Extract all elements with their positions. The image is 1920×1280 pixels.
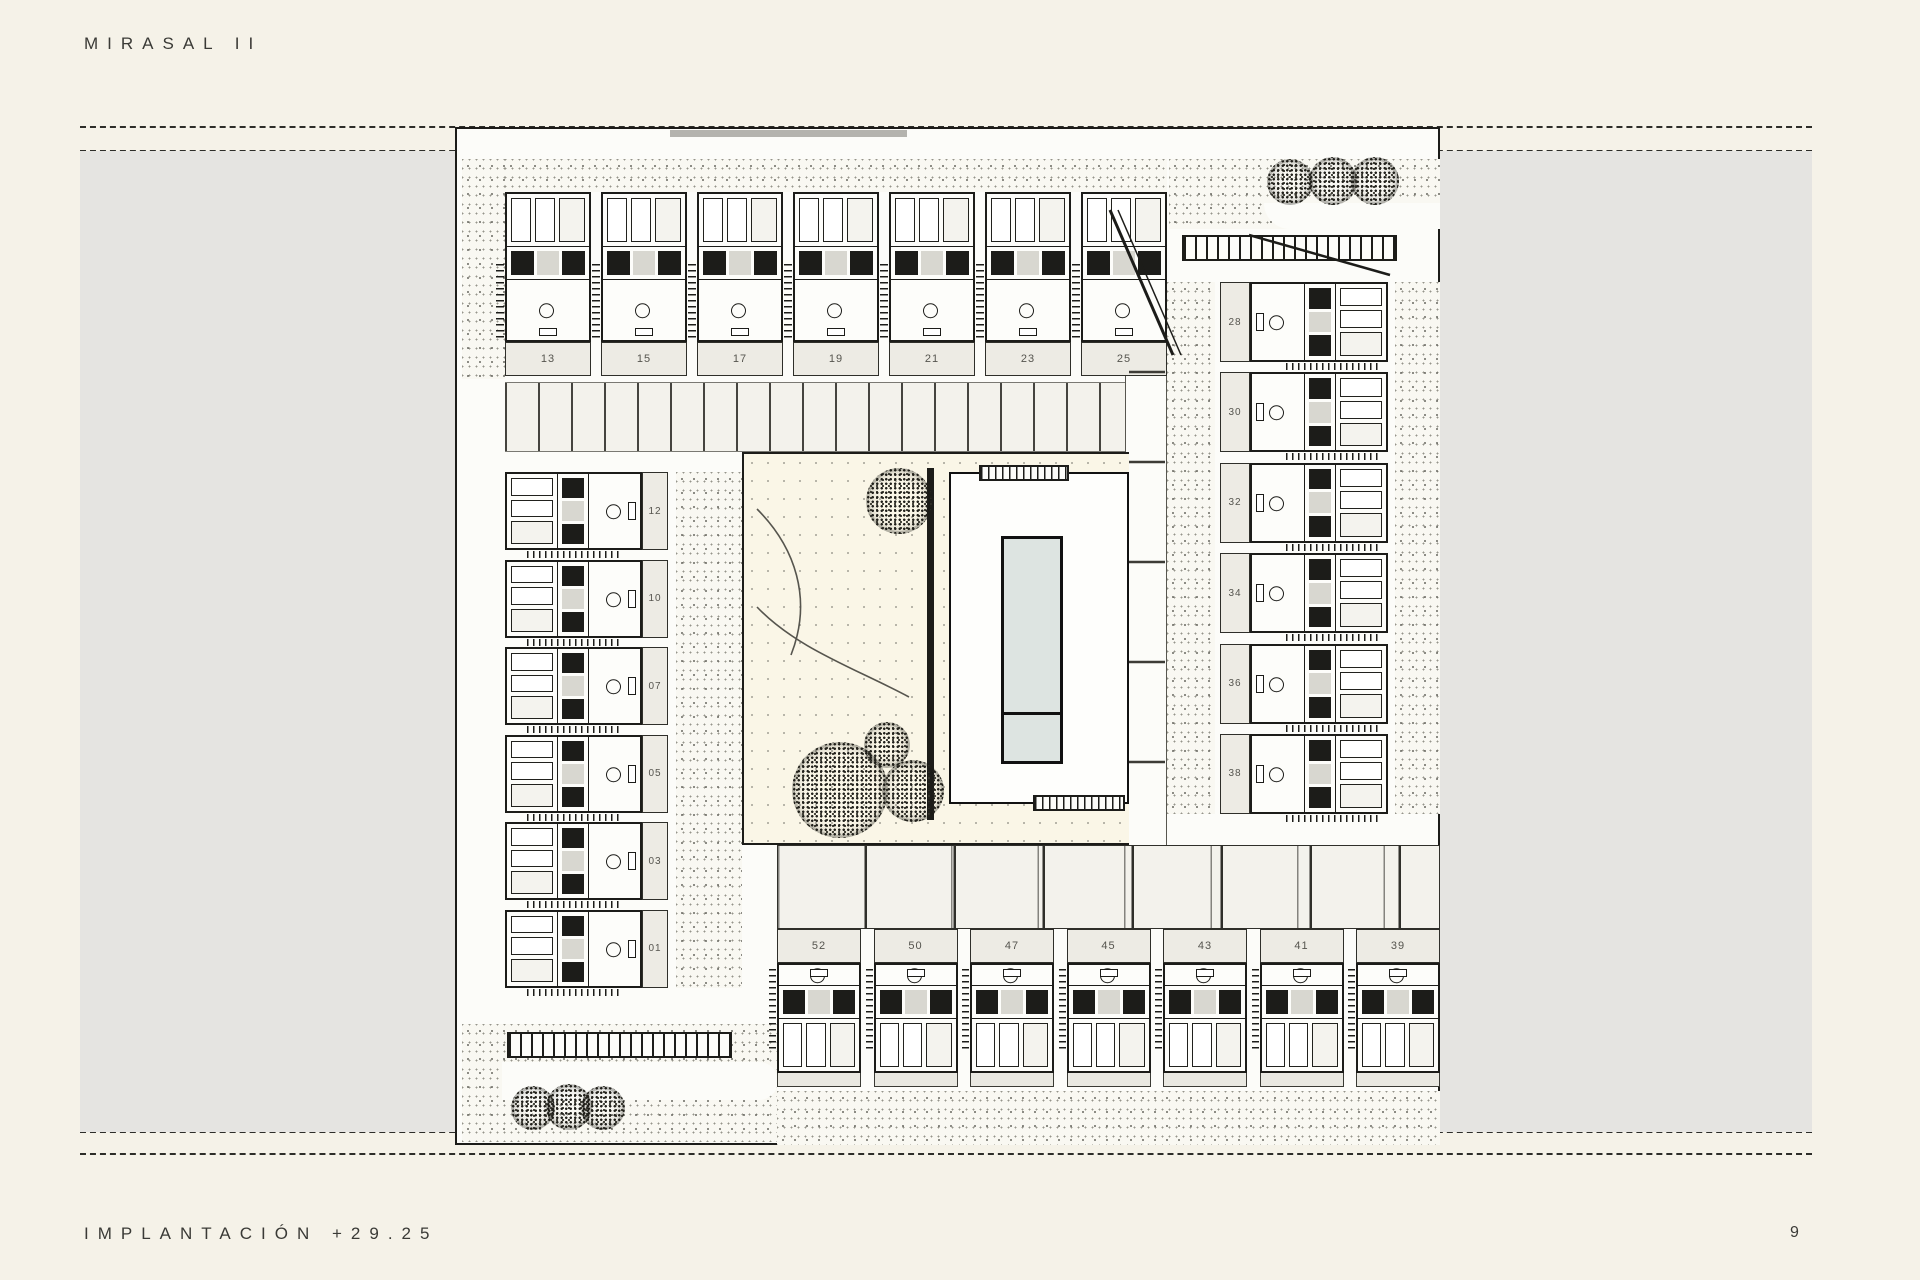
sofa-icon	[827, 328, 845, 336]
planting-strip-left-col	[676, 472, 742, 988]
bathroom	[891, 246, 973, 280]
bathroom	[1358, 985, 1438, 1019]
bathroom	[1262, 985, 1342, 1019]
tree-icon	[581, 1086, 625, 1130]
bathroom	[603, 246, 685, 280]
unit-block: 34	[1220, 553, 1388, 633]
table-icon	[1019, 303, 1034, 318]
sofa-icon	[1256, 675, 1264, 693]
bathroom	[1304, 284, 1336, 360]
unit-block: 01	[505, 910, 668, 988]
housing-unit-plan	[505, 910, 642, 988]
living-room	[972, 965, 1052, 985]
table-icon	[635, 303, 650, 318]
unit-block: 21	[889, 192, 975, 376]
living-room	[795, 280, 877, 340]
bathroom	[507, 246, 589, 280]
bedrooms	[507, 649, 557, 723]
living-room	[1069, 965, 1149, 985]
bedrooms	[1358, 1019, 1438, 1071]
table-icon	[606, 767, 621, 782]
swimming-pool	[1001, 536, 1063, 764]
sheet-footer-label: IMPLANTACIÓN +29.25	[84, 1224, 438, 1244]
unit-block: 25	[1081, 192, 1167, 376]
housing-unit-plan	[1250, 644, 1388, 724]
bathroom	[1304, 555, 1336, 631]
housing-unit-plan	[1260, 963, 1344, 1073]
table-icon	[731, 303, 746, 318]
drawing-sheet: { "page": { "title": "MIRASAL II", "foot…	[0, 0, 1920, 1280]
sheet-title: MIRASAL II	[84, 34, 262, 54]
table-icon	[827, 303, 842, 318]
living-room	[779, 965, 859, 985]
table-icon	[1269, 677, 1284, 692]
tree-icon	[1351, 157, 1399, 205]
bedrooms	[1069, 1019, 1149, 1071]
table-icon	[606, 679, 621, 694]
housing-unit-plan	[777, 963, 861, 1073]
living-room	[589, 737, 640, 811]
path-under-trees	[1264, 203, 1440, 229]
bathroom	[779, 985, 859, 1019]
unit-block: 39	[1356, 929, 1440, 1087]
bathroom	[876, 985, 956, 1019]
housing-unit-plan	[1081, 192, 1167, 342]
bathroom	[1069, 985, 1149, 1019]
unit-row-bottom: 52 50 47	[777, 929, 1440, 1087]
bathroom	[1304, 374, 1336, 450]
bedrooms	[507, 912, 557, 986]
unit-col-right: 28 30 32	[1220, 282, 1388, 814]
housing-unit-plan	[874, 963, 958, 1073]
unit-block: 15	[601, 192, 687, 376]
housing-unit-plan	[1067, 963, 1151, 1073]
housing-unit-plan	[970, 963, 1054, 1073]
housing-unit-plan	[1250, 734, 1388, 814]
unit-block: 45	[1067, 929, 1151, 1087]
sofa-icon	[628, 765, 636, 783]
sofa-icon	[628, 677, 636, 695]
housing-unit-plan	[1250, 553, 1388, 633]
sofa-icon	[810, 969, 828, 977]
unit-block: 10	[505, 560, 668, 638]
unit-block: 30	[1220, 372, 1388, 452]
living-room	[876, 965, 956, 985]
terrace-strip	[1067, 1073, 1151, 1087]
housing-unit-plan	[1163, 963, 1247, 1073]
sofa-icon	[1256, 313, 1264, 331]
housing-unit-plan	[889, 192, 975, 342]
table-icon	[606, 942, 621, 957]
bathroom	[557, 649, 589, 723]
living-room	[699, 280, 781, 340]
unit-block: 43	[1163, 929, 1247, 1087]
tree-icon	[882, 760, 944, 822]
bedrooms	[699, 194, 781, 246]
housing-unit-plan	[1250, 372, 1388, 452]
unit-block: 41	[1260, 929, 1344, 1087]
planting-strip-far-right	[1395, 282, 1440, 814]
living-room	[891, 280, 973, 340]
unit-block: 05	[505, 735, 668, 813]
sofa-icon	[1256, 494, 1264, 512]
table-icon	[1269, 406, 1284, 421]
unit-number-label: 45	[1067, 929, 1151, 963]
living-room	[1252, 465, 1304, 541]
housing-unit-plan	[985, 192, 1071, 342]
sofa-icon	[628, 940, 636, 958]
pool-lane-divider	[1003, 712, 1061, 715]
housing-unit-plan	[505, 647, 642, 725]
table-icon	[1269, 586, 1284, 601]
bedrooms	[507, 562, 557, 636]
patio-cells-band	[777, 845, 1440, 929]
bedrooms	[1336, 284, 1386, 360]
unit-block: 07	[505, 647, 668, 725]
unit-block: 17	[697, 192, 783, 376]
page-number: 9	[1790, 1224, 1801, 1242]
unit-block: 03	[505, 822, 668, 900]
unit-block: 19	[793, 192, 879, 376]
unit-number-label: 01	[642, 910, 668, 988]
bedrooms	[507, 824, 557, 898]
table-icon	[539, 303, 554, 318]
terrace-strip	[777, 1073, 861, 1087]
table-icon	[606, 592, 621, 607]
unit-number-label: 25	[1081, 342, 1167, 376]
bathroom	[795, 246, 877, 280]
sofa-icon	[628, 590, 636, 608]
bedrooms	[891, 194, 973, 246]
living-room	[1252, 736, 1304, 812]
bedrooms	[1336, 374, 1386, 450]
living-room	[1358, 965, 1438, 985]
bathroom	[1304, 465, 1336, 541]
living-room	[589, 474, 640, 548]
unit-number-label: 52	[777, 929, 861, 963]
sofa-icon	[923, 328, 941, 336]
unit-number-label: 19	[793, 342, 879, 376]
unit-number-label: 36	[1220, 644, 1250, 724]
sofa-icon	[628, 852, 636, 870]
unit-number-label: 41	[1260, 929, 1344, 963]
site-plan: 13 15 17	[455, 127, 1440, 1145]
sofa-icon	[628, 502, 636, 520]
bathroom	[1304, 646, 1336, 722]
sofa-icon	[1256, 584, 1264, 602]
bedrooms	[507, 194, 589, 246]
bathroom	[699, 246, 781, 280]
unit-number-label: 21	[889, 342, 975, 376]
table-icon	[606, 504, 621, 519]
parking-hatch-bottom-left	[507, 1032, 732, 1058]
living-room	[589, 912, 640, 986]
unit-block: 12	[505, 472, 668, 550]
bedrooms	[1165, 1019, 1245, 1071]
unit-block: 23	[985, 192, 1071, 376]
bedrooms	[1336, 736, 1386, 812]
living-room	[1252, 374, 1304, 450]
tree-icon	[1267, 159, 1313, 205]
unit-block: 28	[1220, 282, 1388, 362]
bathroom	[972, 985, 1052, 1019]
sofa-icon	[635, 328, 653, 336]
unit-block: 13	[505, 192, 591, 376]
top-wall-bar	[670, 130, 907, 137]
bedrooms	[876, 1019, 956, 1071]
bedrooms	[1336, 555, 1386, 631]
bathroom	[557, 562, 589, 636]
housing-unit-plan	[1356, 963, 1440, 1073]
living-room	[1252, 284, 1304, 360]
terrace-strip	[1163, 1073, 1247, 1087]
sofa-icon	[539, 328, 557, 336]
sofa-icon	[1019, 328, 1037, 336]
central-courtyard	[742, 452, 1129, 845]
bedrooms	[1083, 194, 1165, 246]
bathroom	[1083, 246, 1165, 280]
table-icon	[1115, 303, 1130, 318]
unit-number-label: 17	[697, 342, 783, 376]
housing-unit-plan	[1250, 282, 1388, 362]
bedrooms	[779, 1019, 859, 1071]
table-icon	[606, 855, 621, 870]
unit-number-label: 30	[1220, 372, 1250, 452]
bathroom	[557, 824, 589, 898]
unit-block: 32	[1220, 463, 1388, 543]
table-icon	[1269, 496, 1284, 511]
housing-unit-plan	[505, 560, 642, 638]
bathroom	[1165, 985, 1245, 1019]
unit-number-label: 13	[505, 342, 591, 376]
housing-unit-plan	[601, 192, 687, 342]
tree-icon	[866, 468, 932, 534]
housing-unit-plan	[505, 472, 642, 550]
bathroom	[987, 246, 1069, 280]
bathroom	[1304, 736, 1336, 812]
living-room	[1252, 555, 1304, 631]
bathroom	[557, 737, 589, 811]
terrace-strip	[1260, 1073, 1344, 1087]
sofa-icon	[1256, 765, 1264, 783]
living-room	[507, 280, 589, 340]
unit-number-label: 39	[1356, 929, 1440, 963]
unit-number-label: 43	[1163, 929, 1247, 963]
bedrooms	[972, 1019, 1052, 1071]
housing-unit-plan	[793, 192, 879, 342]
tree-icon	[1309, 157, 1357, 205]
unit-number-label: 03	[642, 822, 668, 900]
terrace-strip	[1356, 1073, 1440, 1087]
unit-number-label: 34	[1220, 553, 1250, 633]
planting-strip-top-row	[505, 159, 1167, 192]
sofa-icon	[1003, 969, 1021, 977]
bedrooms	[507, 737, 557, 811]
planting-strip-bottom-row	[777, 1091, 1440, 1145]
living-room	[987, 280, 1069, 340]
unit-number-label: 12	[642, 472, 668, 550]
unit-block: 47	[970, 929, 1054, 1087]
bedrooms	[1262, 1019, 1342, 1071]
sofa-icon	[731, 328, 749, 336]
sofa-icon	[1293, 969, 1311, 977]
unit-block: 52	[777, 929, 861, 1087]
planting-block-bottom-left	[462, 1024, 777, 1142]
bedrooms	[795, 194, 877, 246]
unit-col-left: 12 10 07	[505, 472, 668, 988]
deck-steps-top	[979, 465, 1069, 481]
living-room	[1262, 965, 1342, 985]
unit-number-label: 15	[601, 342, 687, 376]
planting-block-top-right	[1169, 159, 1440, 229]
unit-row-top: 13 15 17	[505, 192, 1167, 376]
boundary-dashed-line-bottom-2	[80, 1153, 1812, 1155]
housing-unit-plan	[1250, 463, 1388, 543]
housing-unit-plan	[505, 735, 642, 813]
housing-unit-plan	[505, 822, 642, 900]
table-icon	[1269, 767, 1284, 782]
planting-strip-right-col	[1167, 282, 1215, 814]
unit-number-label: 32	[1220, 463, 1250, 543]
living-room	[603, 280, 685, 340]
terrace-strip	[874, 1073, 958, 1087]
unit-block: 38	[1220, 734, 1388, 814]
bedrooms	[1336, 465, 1386, 541]
unit-number-label: 05	[642, 735, 668, 813]
deck-steps-bottom	[1033, 795, 1125, 811]
unit-number-label: 38	[1220, 734, 1250, 814]
sofa-icon	[1196, 969, 1214, 977]
unit-block: 50	[874, 929, 958, 1087]
unit-number-label: 10	[642, 560, 668, 638]
unit-number-label: 50	[874, 929, 958, 963]
unit-number-label: 23	[985, 342, 1071, 376]
parking-hatch-top-right	[1182, 235, 1397, 261]
unit-block: 36	[1220, 644, 1388, 724]
living-room	[1165, 965, 1245, 985]
table-icon	[1269, 315, 1284, 330]
bedrooms	[603, 194, 685, 246]
unit-number-label: 07	[642, 647, 668, 725]
right-road-area	[1440, 151, 1812, 1132]
living-room	[589, 649, 640, 723]
housing-unit-plan	[697, 192, 783, 342]
living-room	[1083, 280, 1165, 340]
bedrooms	[1336, 646, 1386, 722]
bathroom	[557, 912, 589, 986]
living-room	[589, 562, 640, 636]
sofa-icon	[1115, 328, 1133, 336]
terrace-strip	[970, 1073, 1054, 1087]
unit-number-label: 28	[1220, 282, 1250, 362]
sofa-icon	[907, 969, 925, 977]
housing-unit-plan	[505, 192, 591, 342]
sofa-icon	[1256, 403, 1264, 421]
living-room	[1252, 646, 1304, 722]
left-road-area	[80, 151, 455, 1132]
sofa-icon	[1100, 969, 1118, 977]
pool-deck	[949, 472, 1129, 804]
bathroom	[557, 474, 589, 548]
bedrooms	[507, 474, 557, 548]
unit-number-label: 47	[970, 929, 1054, 963]
sofa-icon	[1389, 969, 1407, 977]
walkway-top	[505, 382, 1167, 452]
living-room	[589, 824, 640, 898]
table-icon	[923, 303, 938, 318]
bedrooms	[987, 194, 1069, 246]
